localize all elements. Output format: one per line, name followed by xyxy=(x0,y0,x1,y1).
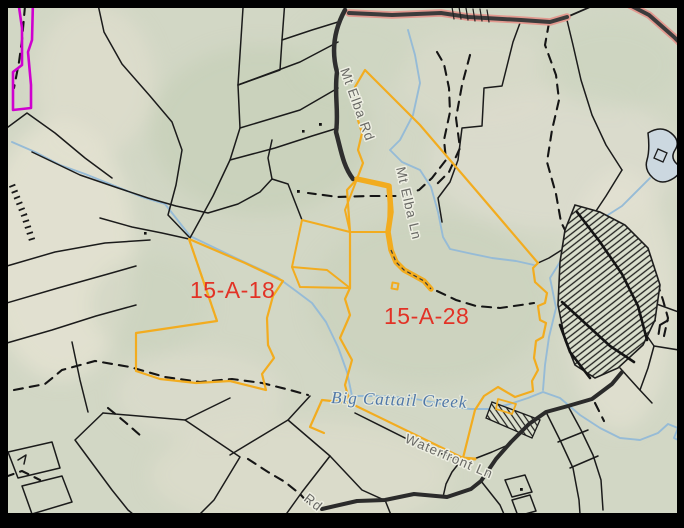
parcel-label-15-A-28: 15-A-28 xyxy=(384,303,469,329)
parcel-label-15-A-18: 15-A-18 xyxy=(190,277,275,303)
map-viewport[interactable]: Mt Elba Rd Mt Elba Ln Waterfront Ln Rd B… xyxy=(0,0,684,528)
parcel-map-canvas[interactable]: Mt Elba Rd Mt Elba Ln Waterfront Ln Rd B… xyxy=(0,0,684,528)
